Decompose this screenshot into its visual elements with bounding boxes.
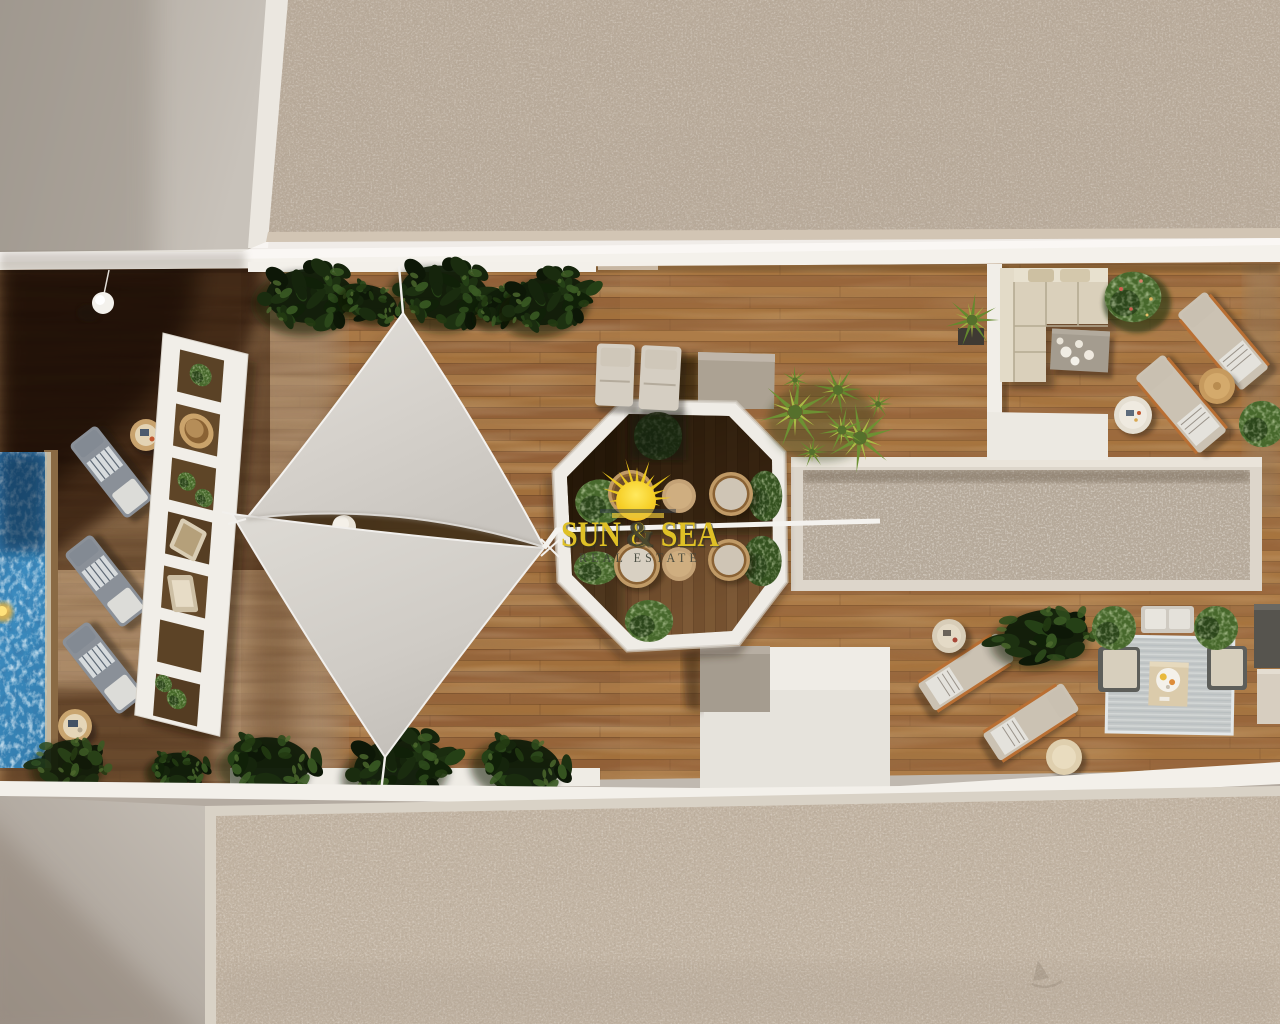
svg-text:&: & <box>625 514 655 554</box>
svg-text:REAL ESTATE: REAL ESTATE <box>579 550 701 565</box>
